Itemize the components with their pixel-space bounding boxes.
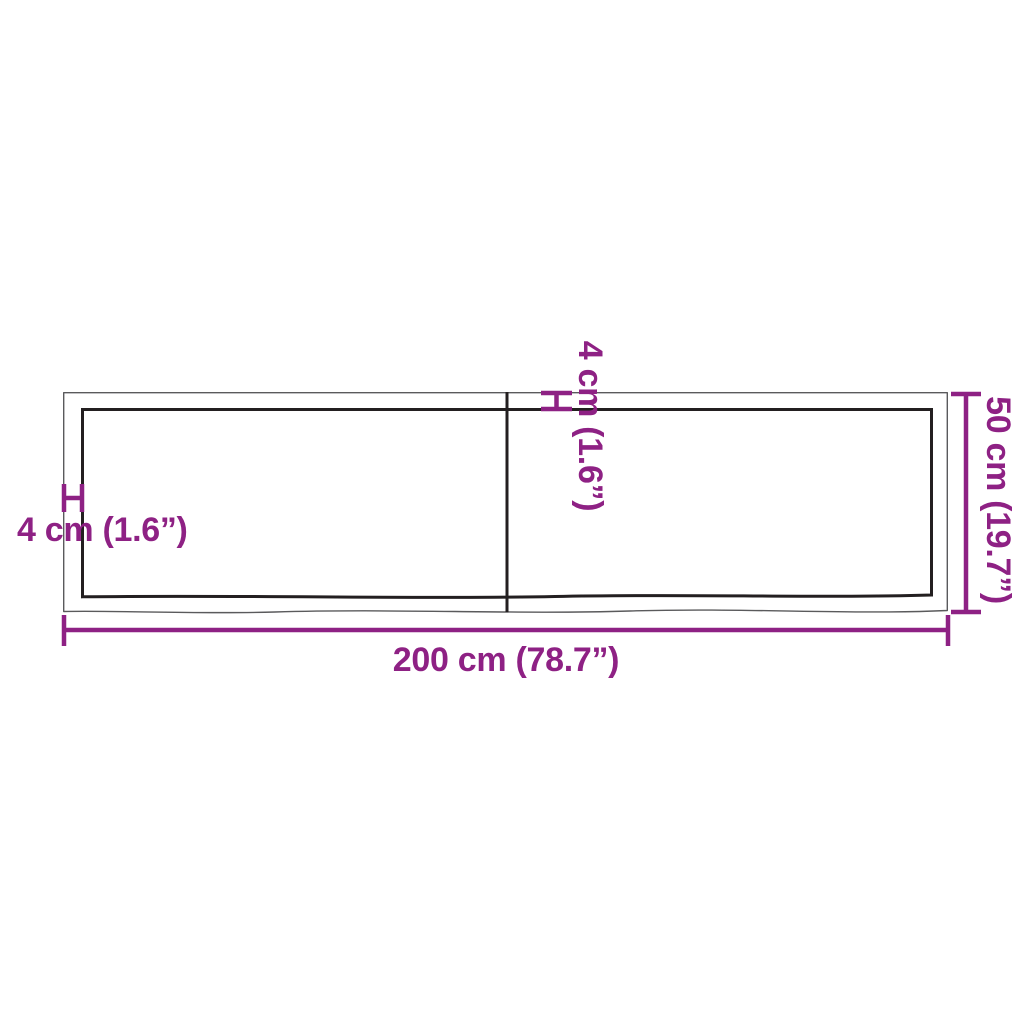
thickness-label-left: 4 cm (1.6”): [17, 510, 188, 550]
thickness-marker-left: [64, 484, 82, 512]
height-label: 50 cm (19.7”): [978, 300, 1018, 700]
thickness-label-top: 4 cm (1.6”): [570, 226, 610, 626]
height-dimension-line: [951, 394, 981, 612]
width-label: 200 cm (78.7”): [306, 640, 706, 680]
thickness-marker-top: [541, 393, 572, 409]
dimension-diagram: 200 cm (78.7”) 50 cm (19.7”) 4 cm (1.6”)…: [0, 0, 1024, 1024]
